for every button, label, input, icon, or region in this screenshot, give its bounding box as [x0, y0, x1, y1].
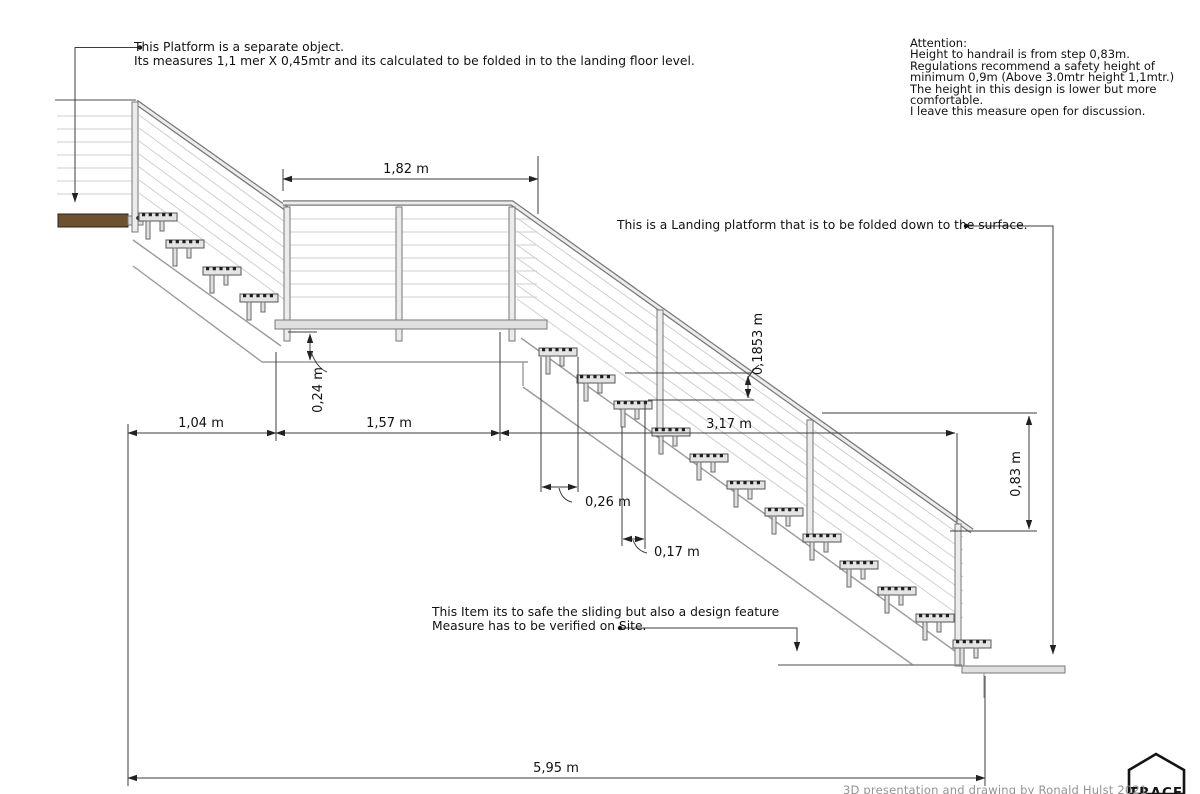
- stair-steps: [139, 213, 991, 666]
- landing-deck: [275, 320, 547, 329]
- attention-line: I leave this measure open for discussion…: [910, 106, 1174, 117]
- staircase-drawing: 1,82 m 0,24 m 1,04 m 1,57 m 3,17 m 0,185…: [0, 0, 1200, 794]
- note-slider-line2: Measure has to be verified on Site.: [432, 620, 779, 634]
- stair-drawing-page: 1,82 m 0,24 m 1,04 m 1,57 m 3,17 m 0,185…: [0, 0, 1200, 794]
- dim-lower-run: 3,17 m: [706, 417, 752, 432]
- dim-total-run: 5,95 m: [533, 761, 579, 776]
- note-platform-line2: Its measures 1,1 mer X 0,45mtr and its c…: [134, 55, 695, 69]
- upper-floor: [55, 100, 143, 227]
- note-slider-line1: This Item its to safe the sliding but al…: [432, 606, 779, 620]
- note-platform: This Platform is a separate object. Its …: [134, 41, 695, 68]
- dim-platform-thickness: 0,24 m: [311, 367, 326, 413]
- dim-riser: 0,1853 m: [751, 313, 766, 375]
- dim-tread: 0,26 m: [585, 495, 631, 510]
- dim-offset: 0,17 m: [654, 545, 700, 560]
- bottom-landing-platform: [962, 666, 1065, 673]
- footer-credit: 3D presentation and drawing by Ronald Hu…: [843, 783, 1147, 794]
- wood-platform: [58, 214, 128, 227]
- dim-landing-run: 1,57 m: [366, 416, 412, 431]
- spine-beam: [133, 240, 959, 665]
- ground-and-bottom-platform: [778, 665, 1065, 698]
- note-slider: This Item its to safe the sliding but al…: [432, 606, 779, 633]
- note-platform-line1: This Platform is a separate object.: [134, 41, 695, 55]
- dim-upper-run: 1,04 m: [178, 416, 224, 431]
- note-attention: Attention: Height to handrail is from st…: [910, 38, 1174, 118]
- dim-landing-width: 1,82 m: [383, 162, 429, 177]
- dim-handrail-height: 0,83 m: [1009, 451, 1024, 497]
- note-landing: This is a Landing platform that is to be…: [617, 219, 1028, 233]
